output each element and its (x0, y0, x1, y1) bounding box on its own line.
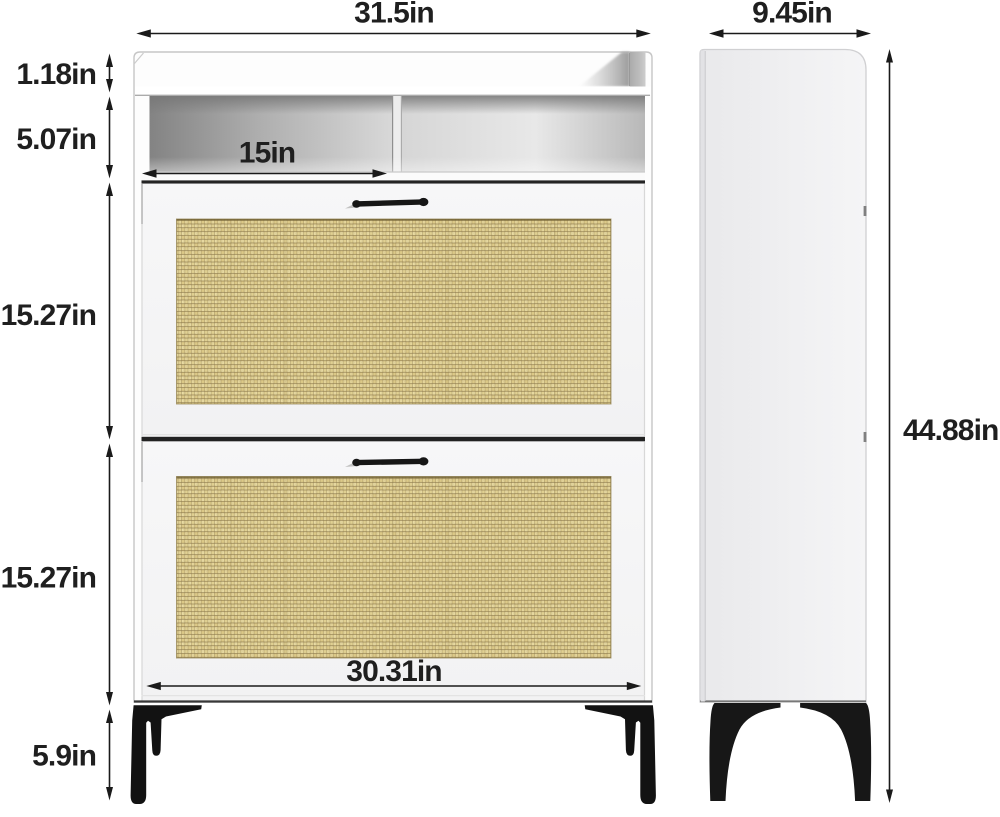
svg-text:44.88in: 44.88in (903, 414, 998, 447)
svg-text:15in: 15in (239, 137, 295, 170)
svg-text:1.18in: 1.18in (16, 58, 96, 91)
svg-text:15.27in: 15.27in (1, 299, 96, 332)
svg-text:15.27in: 15.27in (1, 562, 96, 595)
svg-text:31.5in: 31.5in (354, 0, 434, 29)
svg-text:5.07in: 5.07in (16, 123, 96, 156)
svg-text:9.45in: 9.45in (752, 0, 832, 29)
svg-text:30.31in: 30.31in (346, 655, 441, 688)
svg-text:5.9in: 5.9in (32, 740, 96, 773)
